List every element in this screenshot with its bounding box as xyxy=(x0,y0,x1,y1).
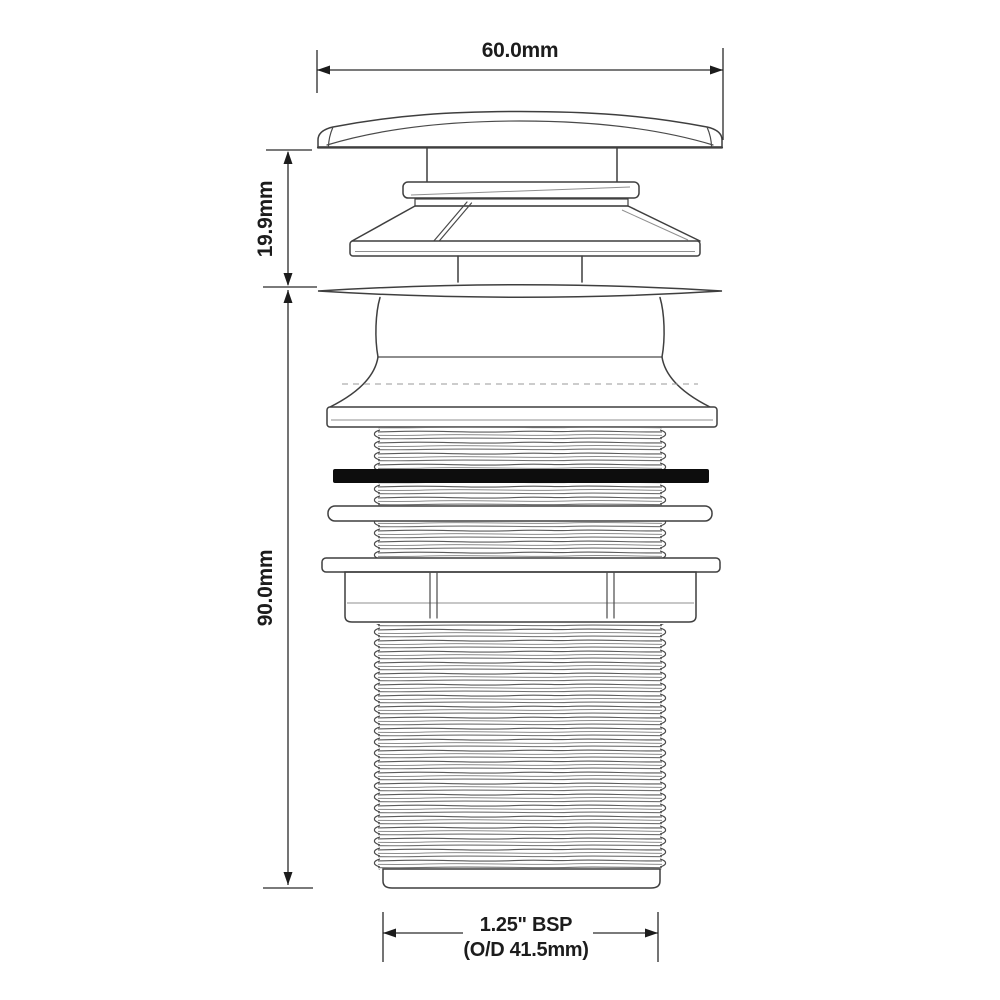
neck-right-edge xyxy=(660,298,664,358)
neck-left-edge xyxy=(376,298,380,358)
rubber-gasket xyxy=(333,469,709,483)
arrowhead-right-icon xyxy=(710,66,723,75)
waste-body xyxy=(318,285,722,427)
click-mechanism xyxy=(350,148,700,282)
dimension-thread-size-label: 1.25" BSP xyxy=(480,914,572,936)
product-diagram-canvas: 60.0mm 19.9mm 90.0mm xyxy=(0,0,1000,1000)
dimension-width-label: 60.0mm xyxy=(482,39,558,62)
arrowhead-up-icon xyxy=(284,151,293,164)
arrowhead-left-icon xyxy=(317,66,330,75)
thread-left-edge xyxy=(370,624,380,870)
thread-end-cap xyxy=(383,869,660,888)
thread-right-edge xyxy=(660,624,670,870)
thread-upper xyxy=(370,427,670,560)
arrowhead-up-icon xyxy=(284,290,293,303)
arrowhead-right-icon xyxy=(645,929,658,938)
bell-right-edge xyxy=(662,357,710,407)
thread-left-edge xyxy=(370,427,380,560)
thread-right-edge xyxy=(660,427,670,560)
dimension-body-height-label: 90.0mm xyxy=(254,550,277,626)
arrowhead-down-icon xyxy=(284,872,293,885)
dimension-body-height: 90.0mm xyxy=(254,290,313,888)
flat-washer xyxy=(328,506,712,521)
mechanism-band xyxy=(350,241,700,256)
arrowhead-left-icon xyxy=(383,929,396,938)
dimension-thread-od-label: (O/D 41.5mm) xyxy=(463,939,588,961)
dome-outline xyxy=(318,112,722,148)
backnut xyxy=(322,558,720,622)
thread-tail xyxy=(370,624,670,888)
backnut-flange xyxy=(322,558,720,572)
bell-band xyxy=(327,407,717,427)
cone-left-edge xyxy=(352,206,415,241)
dimension-cap-height: 19.9mm xyxy=(254,150,317,287)
dimension-thread: 1.25" BSP (O/D 41.5mm) xyxy=(383,912,658,962)
mechanism-bar xyxy=(403,182,639,198)
dimension-cap-height-label: 19.9mm xyxy=(254,181,277,257)
thread-texture xyxy=(378,624,662,870)
bell-left-edge xyxy=(330,357,378,407)
dome-cap xyxy=(318,112,722,148)
mechanism-lip xyxy=(415,199,628,206)
top-flange xyxy=(318,285,722,298)
cone-right-edge xyxy=(628,206,700,241)
arrowhead-down-icon xyxy=(284,273,293,286)
technical-drawing: 60.0mm 19.9mm 90.0mm xyxy=(0,0,1000,1000)
backnut-body xyxy=(345,572,696,622)
thread-texture xyxy=(378,427,662,560)
lever-strut xyxy=(433,202,467,242)
